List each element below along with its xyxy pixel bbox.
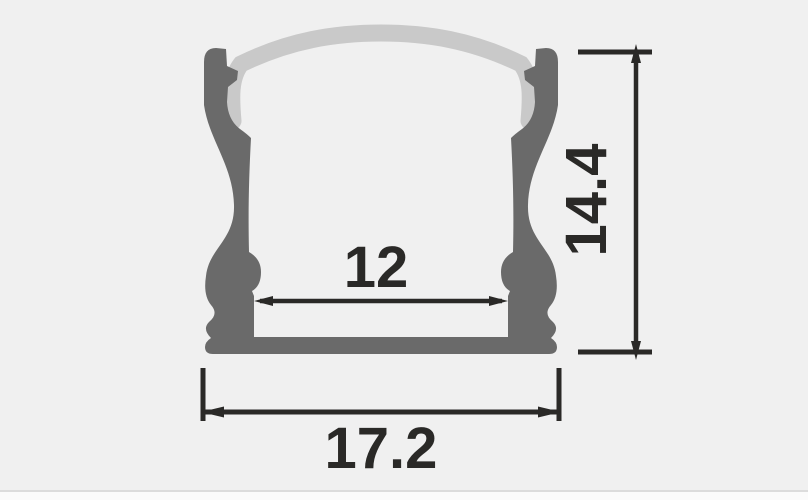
profile-cross-section-drawing: 12 14.4 17.2 bbox=[0, 0, 808, 500]
inner-width-label: 12 bbox=[344, 235, 409, 300]
diffuser-cover-shape bbox=[232, 33, 531, 121]
inner-width-arrowhead-left bbox=[254, 296, 273, 306]
dimension-inner-width: 12 bbox=[254, 235, 508, 306]
profile-body-shape bbox=[204, 48, 558, 354]
dimension-outer-width: 17.2 bbox=[201, 368, 561, 481]
inner-width-arrowhead-right bbox=[489, 296, 508, 306]
page-footer-strip bbox=[0, 490, 808, 500]
outer-width-label: 17.2 bbox=[325, 416, 438, 481]
height-label: 14.4 bbox=[554, 144, 619, 257]
dimension-height: 14.4 bbox=[554, 44, 652, 360]
drawing-canvas: 12 14.4 17.2 bbox=[0, 0, 808, 500]
